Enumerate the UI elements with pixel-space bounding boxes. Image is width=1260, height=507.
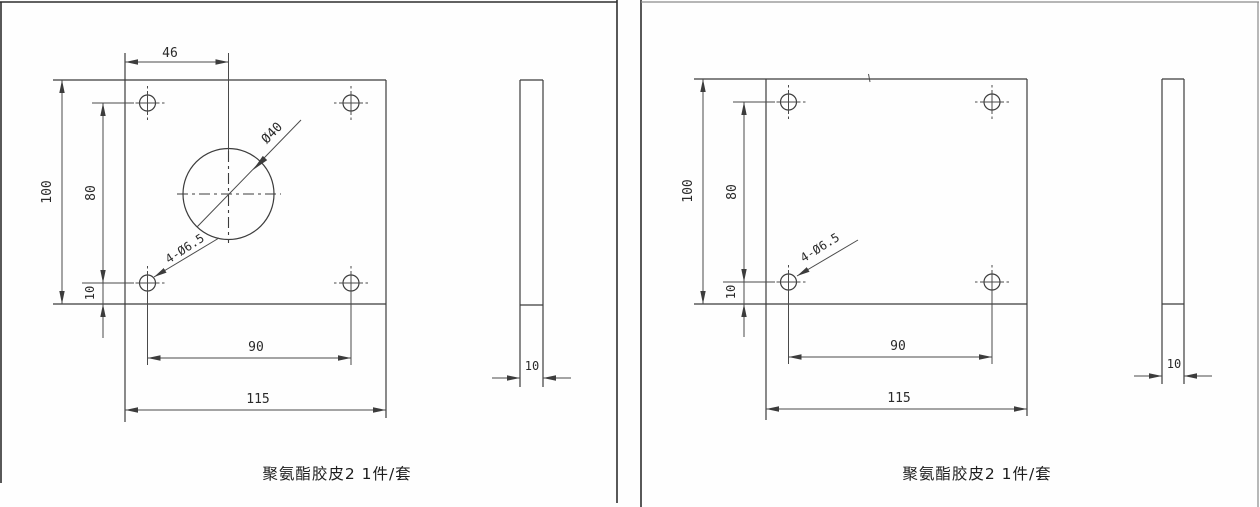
left-bolt-holes xyxy=(131,86,369,300)
dim-height: 100 xyxy=(40,180,55,203)
dim-hole-offset-bottom: 10 xyxy=(724,285,738,299)
bolt-hole-icon xyxy=(975,85,1009,119)
bolt-hole-icon xyxy=(772,85,806,119)
bolt-hole-icon xyxy=(334,86,368,120)
right-extension-lines xyxy=(723,102,992,364)
dim-hole-offset-top: 46 xyxy=(162,46,178,61)
right-part-caption: 聚氨酯胶皮2 1件/套 xyxy=(902,465,1051,483)
centerline-tick xyxy=(869,74,871,82)
right-corner-holes-leader: 4-Ø6.5 xyxy=(797,230,858,276)
drawing-canvas: Ø40 4-Ø6.5 46 100 80 10 xyxy=(0,0,1260,507)
right-side-view: 10 xyxy=(1134,79,1212,384)
bolt-hole-icon xyxy=(131,86,165,120)
dim-hole-span-horizontal: 90 xyxy=(890,339,906,354)
corner-holes-label: 4-Ø6.5 xyxy=(798,230,842,265)
dim-height: 100 xyxy=(681,179,696,202)
right-dim-10: 10 xyxy=(724,282,744,337)
left-corner-holes-leader: 4-Ø6.5 xyxy=(154,231,219,277)
left-dim-80: 80 xyxy=(84,103,103,283)
dim-width: 115 xyxy=(246,392,269,407)
dim-hole-span-vertical: 80 xyxy=(725,184,740,200)
left-panel-drawing: Ø40 4-Ø6.5 46 100 80 10 xyxy=(40,46,571,483)
right-panel-drawing: 4-Ø6.5 100 80 10 90 115 xyxy=(681,74,1212,483)
left-part-caption: 聚氨酯胶皮2 1件/套 xyxy=(262,465,411,483)
dim-hole-span-vertical: 80 xyxy=(84,185,99,201)
right-dim-115: 115 xyxy=(766,391,1027,409)
center-hole-diameter-label: Ø40 xyxy=(259,120,286,147)
left-dim-115: 115 xyxy=(125,392,386,410)
dim-thickness: 10 xyxy=(525,359,539,373)
left-dim-100: 100 xyxy=(40,80,62,304)
dim-hole-span-horizontal: 90 xyxy=(248,340,264,355)
left-side-view: 10 xyxy=(492,80,571,387)
dim-width: 115 xyxy=(887,391,910,406)
left-dim-90: 90 xyxy=(148,340,352,358)
left-extension-lines xyxy=(82,103,351,365)
right-dim-100: 100 xyxy=(681,79,703,304)
left-dim-10: 10 xyxy=(83,283,103,338)
dim-thickness: 10 xyxy=(1167,357,1181,371)
right-bolt-holes xyxy=(772,85,1010,299)
right-dim-90: 90 xyxy=(789,339,993,357)
right-dim-80: 80 xyxy=(725,102,744,282)
technical-drawing-sheet: Ø40 4-Ø6.5 46 100 80 10 xyxy=(0,0,1260,507)
left-dim-46: 46 xyxy=(125,46,229,62)
left-center-hole: Ø40 xyxy=(177,53,301,243)
dim-hole-offset-bottom: 10 xyxy=(83,286,97,300)
corner-holes-label: 4-Ø6.5 xyxy=(163,231,207,266)
